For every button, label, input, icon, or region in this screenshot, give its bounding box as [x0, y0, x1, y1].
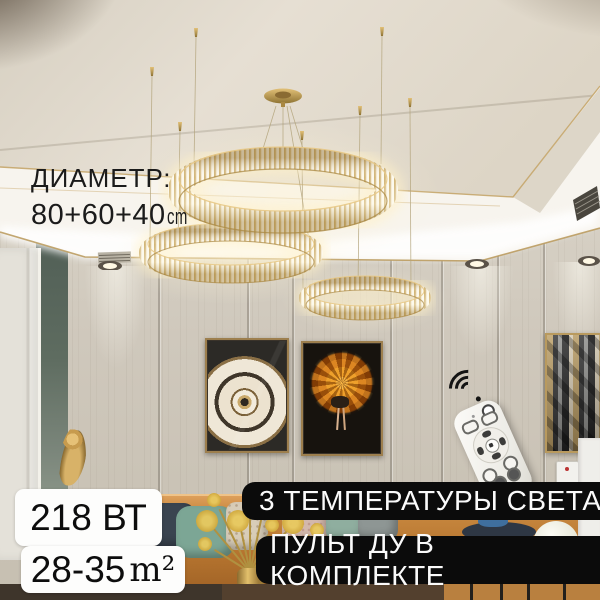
power-badge-text: 218 ВТ	[30, 497, 147, 539]
area-badge-value: 28-35	[31, 549, 126, 591]
product-photo: ДИАМЕТР: 80+60+40cm 218 ВТ 28-35 m² 3 ТЕ…	[0, 0, 600, 600]
diameter-value: 80+60+40cm	[31, 198, 197, 233]
ceiling-anchors	[150, 27, 412, 140]
feature-badge-temperatures-text: 3 ТЕМПЕРАТУРЫ СВЕТА	[259, 485, 600, 517]
crystal-ring-large	[179, 147, 387, 233]
feature-badge-remote-text: ПУЛЬТ ДУ В КОМПЛЕКТЕ	[270, 528, 600, 592]
shadow-vignette	[470, 0, 600, 40]
diameter-label: ДИАМЕТР: 80+60+40cm	[31, 163, 197, 233]
area-badge-unit: m²	[129, 550, 175, 590]
diameter-unit: cm	[167, 204, 188, 230]
picture-figure	[331, 396, 349, 408]
shadow-vignette	[0, 0, 130, 76]
area-badge: 28-35 m²	[21, 546, 185, 593]
remote-led	[471, 414, 475, 418]
feature-badge-remote: ПУЛЬТ ДУ В КОМПЛЕКТЕ	[256, 536, 600, 584]
ceiling-canopy	[264, 89, 302, 108]
crystal-ring-small	[306, 276, 424, 320]
remote-dpad-up	[481, 429, 492, 438]
diameter-title: ДИАМЕТР:	[31, 163, 197, 194]
remote-dpad-left	[476, 446, 485, 456]
plant-bloom	[207, 493, 221, 507]
feature-badge-temperatures: 3 ТЕМПЕРАТУРЫ СВЕТА	[242, 482, 600, 520]
power-badge: 218 ВТ	[15, 489, 162, 546]
plant-bloom	[196, 510, 218, 532]
